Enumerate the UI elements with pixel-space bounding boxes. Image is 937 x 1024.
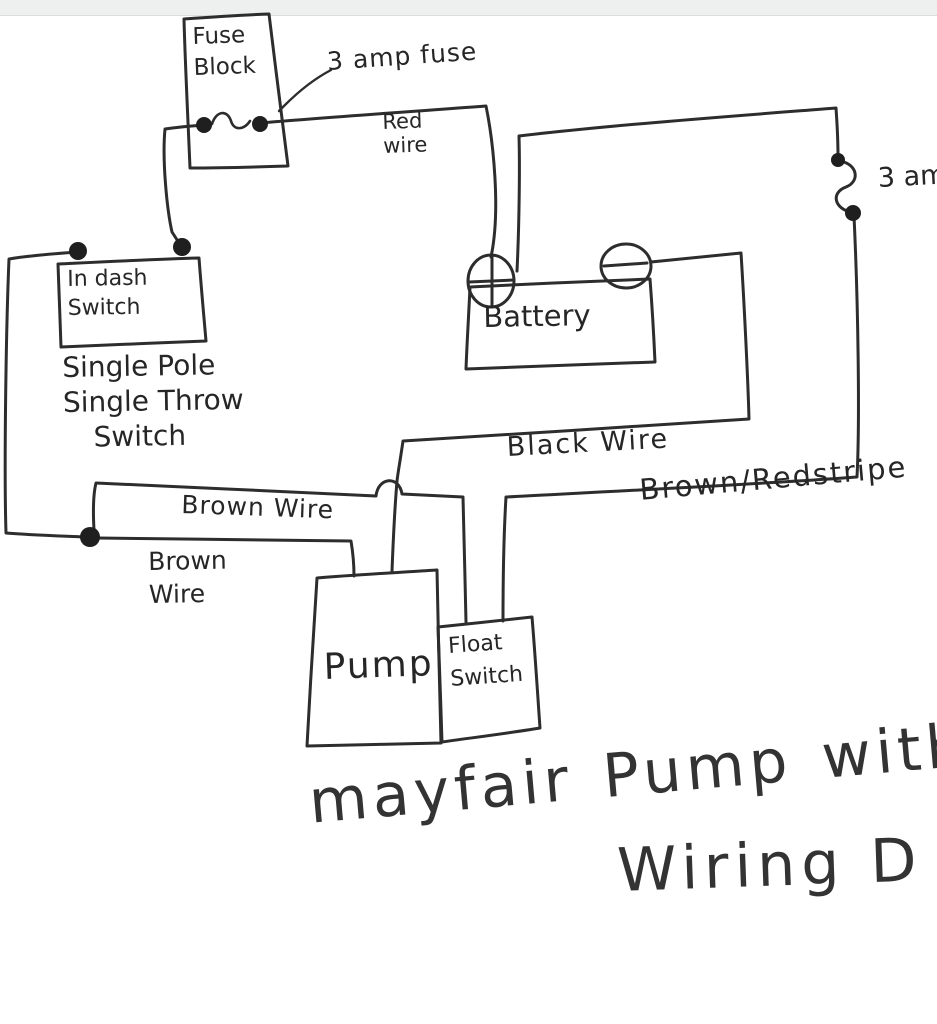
switch-terminal-left-dot xyxy=(69,242,87,260)
fuse-block-label: Fuse Block xyxy=(192,20,256,84)
brown-wire-lower-label-line1: Brown xyxy=(148,545,227,579)
float-switch-label-line1: Float xyxy=(447,625,522,663)
wire-battery-to-right-fuse xyxy=(517,108,838,271)
red-wire-label: Red wire xyxy=(382,108,428,158)
right-fuse-label: 3 am xyxy=(877,158,937,195)
fuse-block-label-line2: Block xyxy=(193,51,256,84)
fuse-block-terminal-right-dot xyxy=(252,116,268,132)
fuse-element-icon xyxy=(212,113,250,128)
brown-wire-lower-label-line2: Wire xyxy=(149,577,228,611)
diagram-title-line2: Wiring D xyxy=(616,823,924,909)
spst-note-line3: Switch xyxy=(93,417,244,455)
in-dash-switch-label-line1: In dash xyxy=(67,265,148,295)
brown-wire-upper-label: Brown Wire xyxy=(181,489,335,526)
right-fuse-terminal-top-dot xyxy=(831,153,845,167)
battery-label: Battery xyxy=(483,297,591,335)
wire-red xyxy=(260,106,496,257)
brown-wire-lower-label: Brown Wire xyxy=(148,545,228,611)
wire-fuseblock-to-switch xyxy=(164,125,204,246)
red-wire-label-line1: Red xyxy=(382,108,427,134)
switch-terminal-right-dot xyxy=(173,238,191,256)
brown-wire-junction-dot xyxy=(80,527,100,547)
in-dash-switch-label: In dash Switch xyxy=(67,265,148,324)
fuse-block-label-line1: Fuse xyxy=(192,20,255,53)
right-fuse-element-icon xyxy=(836,161,855,212)
fuse-callout-leader-line xyxy=(279,70,331,111)
spst-note-line2: Single Throw xyxy=(63,382,244,420)
fuse-block-terminal-left-dot xyxy=(196,117,212,133)
minus-symbol-icon xyxy=(604,263,647,266)
float-switch-label: Float Switch xyxy=(447,625,524,696)
spst-note: Single Pole Single Throw Switch xyxy=(62,347,245,455)
screenshot-root: Fuse Block 3 amp fuse Red wire 3 am In d… xyxy=(0,0,937,1024)
pump-label: Pump xyxy=(323,641,434,690)
spst-note-line1: Single Pole xyxy=(62,347,243,385)
red-wire-label-line2: wire xyxy=(383,133,428,159)
right-fuse-terminal-bottom-dot xyxy=(845,205,861,221)
wire-brown-red-stripe xyxy=(503,216,858,621)
in-dash-switch-label-line2: Switch xyxy=(67,293,148,323)
float-switch-label-line2: Switch xyxy=(449,658,524,696)
